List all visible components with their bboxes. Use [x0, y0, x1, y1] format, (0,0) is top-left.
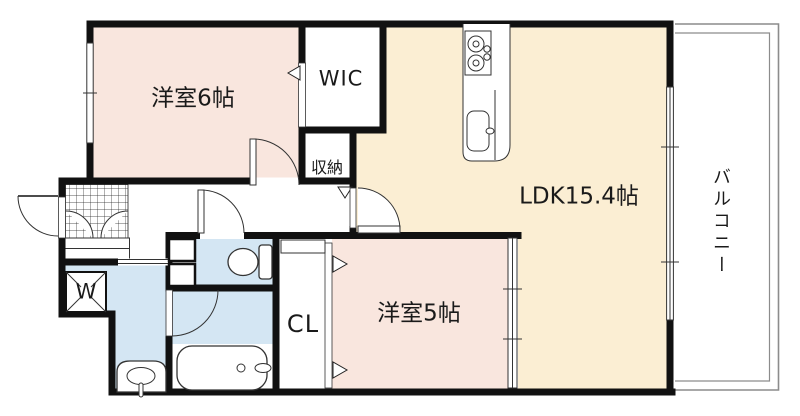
floor-plan: 洋室6帖 WIC 収納 LDK15.4帖 洋室5帖 CL W バルコニー: [0, 0, 800, 416]
bathroom-floor: [169, 288, 276, 344]
pipe-space-boxes: [169, 239, 195, 286]
genkan-step-lower: [65, 249, 130, 260]
floor-plan-drawing: [0, 0, 800, 416]
laundry-label: W: [76, 282, 97, 303]
toilet-door: [198, 190, 244, 239]
bedroom6-label: 洋室6帖: [151, 88, 235, 111]
bathtub-icon: [177, 346, 271, 390]
stove-icon: [465, 31, 491, 75]
toilet-icon: [228, 245, 272, 279]
kitchen-counter: [463, 24, 510, 161]
washroom-sliding-door: [118, 259, 168, 266]
entrance-door: [18, 196, 66, 238]
balcony-label: バルコニー: [711, 167, 729, 277]
wic-label: WIC: [319, 69, 364, 90]
bedroom5-label: 洋室5帖: [377, 303, 461, 326]
genkan-tile: [66, 185, 129, 239]
storage-label: 収納: [311, 160, 343, 176]
ldk-label: LDK15.4帖: [519, 186, 639, 209]
genkan-step-upper: [65, 238, 130, 249]
closet-label: CL: [287, 312, 319, 336]
washbasin-icon: [117, 361, 166, 397]
